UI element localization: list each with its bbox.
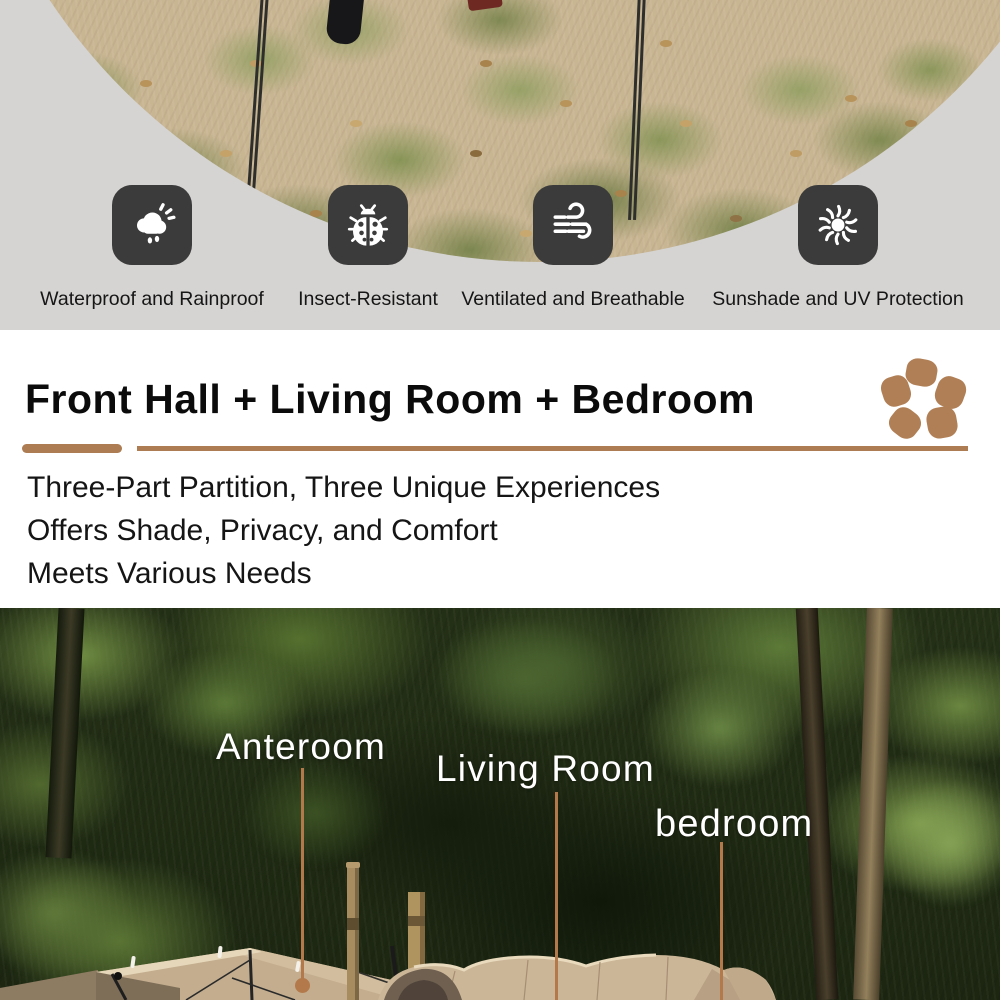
feature-label: Ventilated and Breathable: [461, 288, 684, 311]
label-anteroom: Anteroom: [216, 726, 386, 768]
leader-line-living-room: [555, 792, 558, 1000]
headline-section: Front Hall + Living Room + Bedroom Three…: [0, 330, 1000, 608]
description-line: Offers Shade, Privacy, and Comfort: [27, 509, 660, 552]
sun-icon: [798, 185, 878, 265]
feature-sunshade: Sunshade and UV Protection: [688, 185, 988, 311]
product-detail-page: Waterproof and Rainproof: [0, 0, 1000, 1000]
pebble-decor: [932, 373, 970, 412]
hero-photo-section: Waterproof and Rainproof: [0, 0, 1000, 330]
boot: [325, 0, 364, 46]
fallen-leaves-decor: [0, 0, 12, 7]
leader-line-anteroom: [301, 768, 304, 980]
scene-photo-section: Anteroom Living Room bedroom: [0, 608, 1000, 1000]
pebble-decor: [904, 357, 939, 389]
accent-line: [137, 446, 968, 451]
section-title: Front Hall + Living Room + Bedroom: [25, 376, 755, 423]
feature-label: Insect-Resistant: [298, 288, 438, 311]
foliage-cluster: [430, 618, 620, 738]
description-line: Three-Part Partition, Three Unique Exper…: [27, 466, 660, 509]
feature-ventilated: Ventilated and Breathable: [423, 185, 723, 311]
rain-cloud-icon: [112, 185, 192, 265]
feature-label: Sunshade and UV Protection: [712, 288, 964, 311]
label-living-room: Living Room: [436, 748, 655, 790]
accent-bar: [22, 444, 122, 453]
section-description: Three-Part Partition, Three Unique Exper…: [27, 466, 660, 595]
description-line: Meets Various Needs: [27, 552, 660, 595]
leader-line-bedroom: [720, 842, 723, 1000]
ladybug-icon: [328, 185, 408, 265]
leader-dot-anteroom: [295, 978, 310, 993]
pebble-decor: [925, 405, 960, 441]
wind-icon: [533, 185, 613, 265]
foliage-cluster: [640, 668, 800, 788]
tent-illustration: [0, 820, 1000, 1000]
ground-item: [467, 0, 503, 11]
label-bedroom: bedroom: [655, 803, 813, 846]
pebble-decor: [885, 403, 926, 444]
